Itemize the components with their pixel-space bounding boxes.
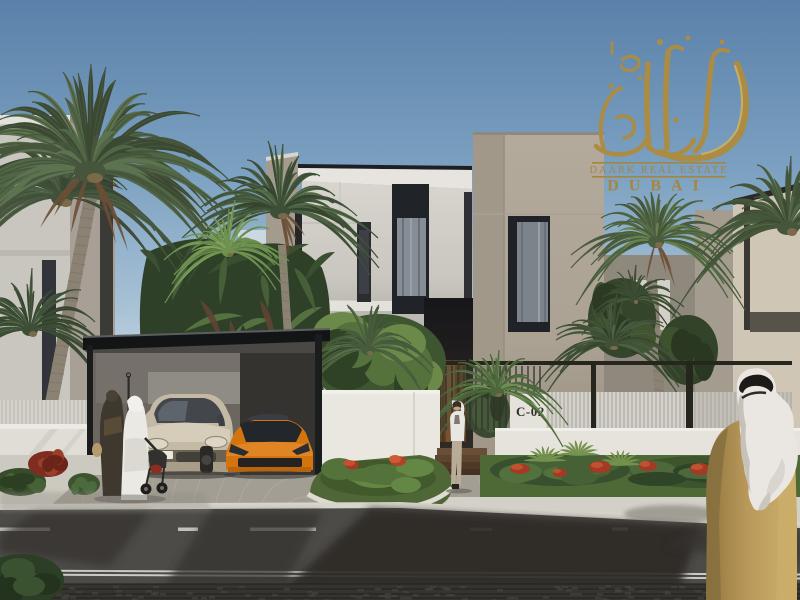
svg-text:DAARK REAL ESTATE: DAARK REAL ESTATE — [590, 165, 729, 176]
svg-text:DUBAI: DUBAI — [607, 178, 709, 195]
